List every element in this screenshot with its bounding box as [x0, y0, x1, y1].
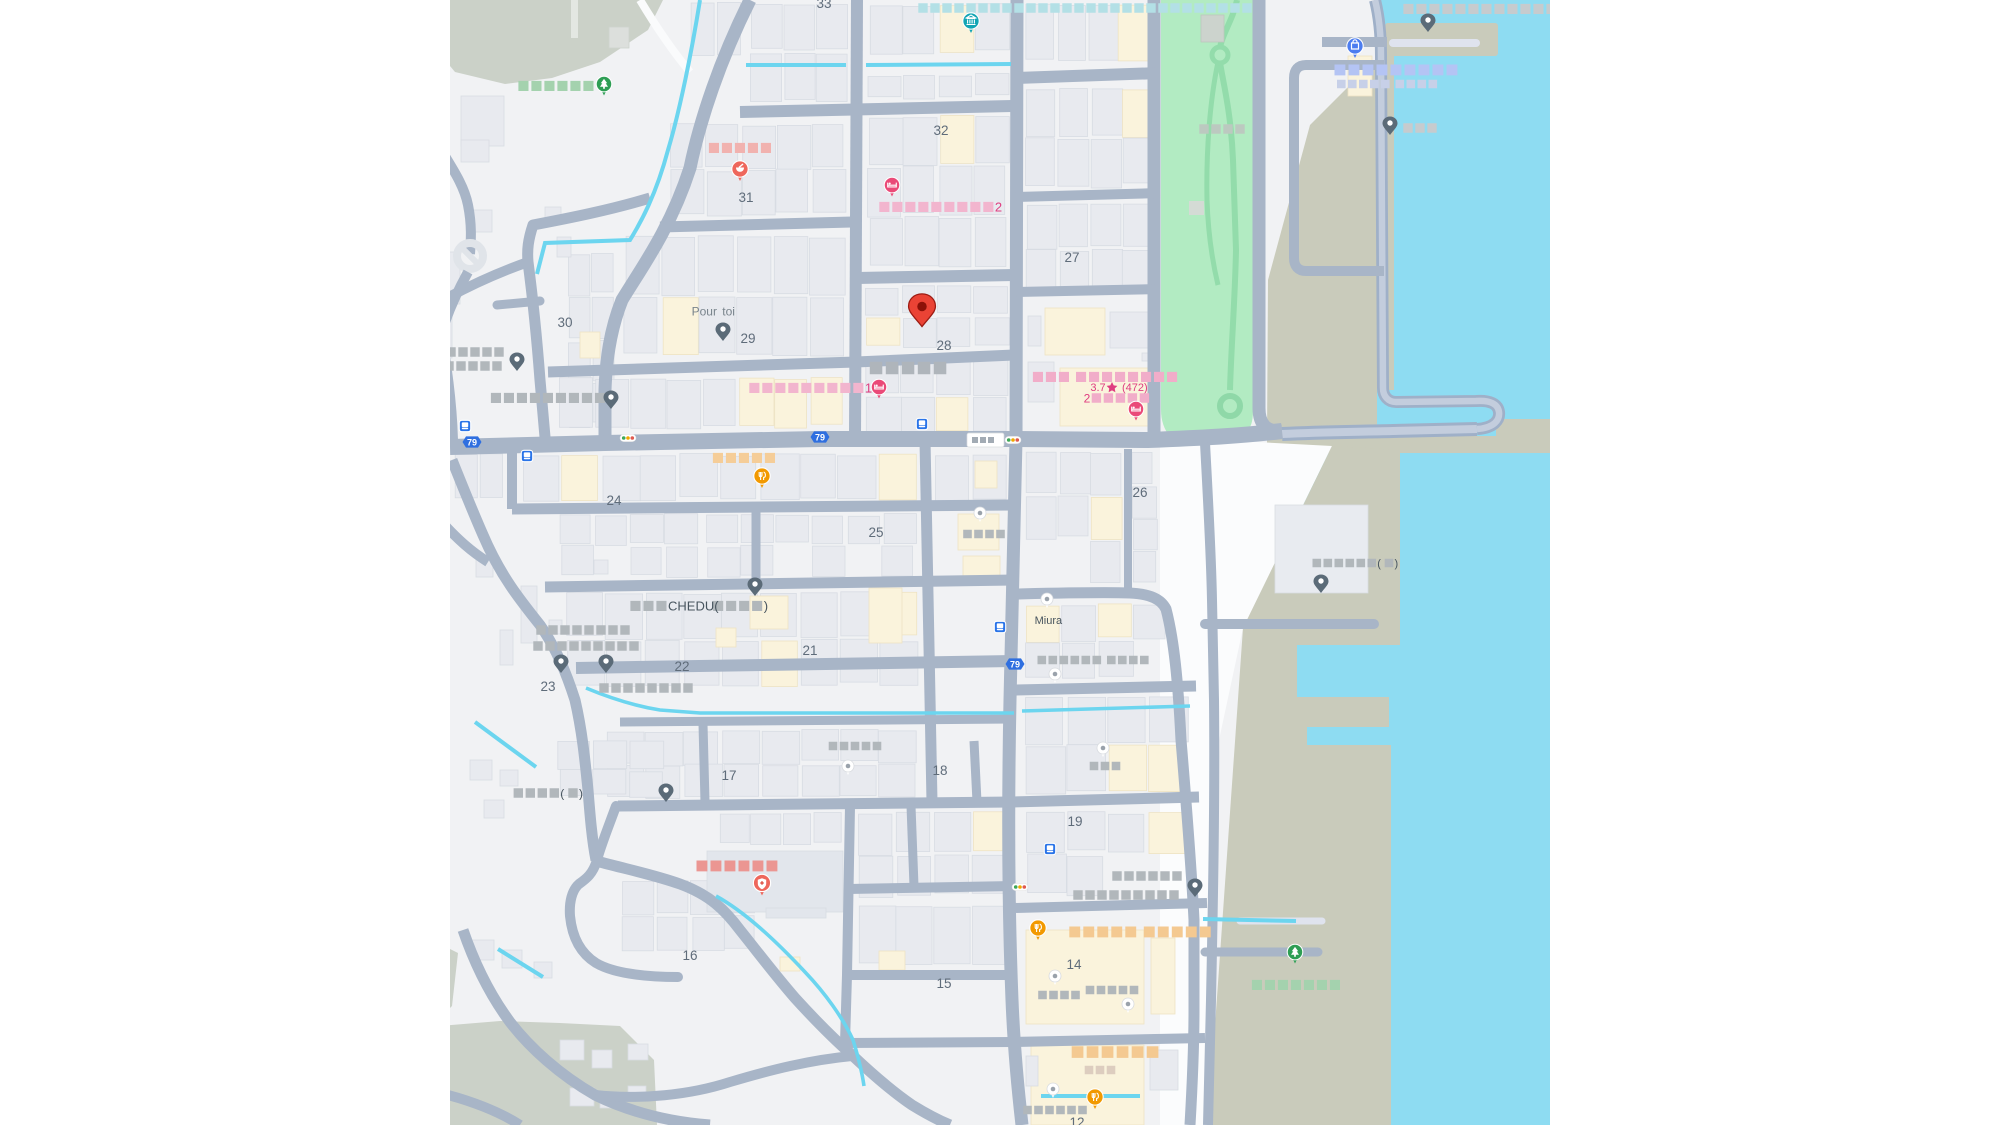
svg-text:24: 24: [606, 493, 622, 508]
svg-text:(: (: [1377, 558, 1381, 570]
svg-text:(472): (472): [1122, 382, 1148, 394]
svg-text:17: 17: [721, 768, 736, 783]
svg-text:23: 23: [540, 679, 555, 694]
svg-text:(: (: [560, 786, 564, 800]
svg-text:2: 2: [1084, 391, 1091, 405]
svg-text:Pour: Pour: [692, 304, 717, 318]
svg-text:32: 32: [933, 123, 948, 138]
svg-text:2: 2: [995, 200, 1002, 215]
svg-text:28: 28: [936, 338, 951, 353]
svg-text:29: 29: [740, 331, 755, 346]
svg-text:3.7: 3.7: [1090, 382, 1105, 394]
svg-text:31: 31: [738, 190, 753, 205]
svg-text:18: 18: [932, 763, 947, 778]
svg-text:21: 21: [802, 643, 817, 658]
svg-text:79: 79: [467, 437, 477, 447]
svg-text:22: 22: [674, 659, 689, 674]
svg-text:30: 30: [557, 315, 572, 330]
svg-text:79: 79: [815, 432, 825, 442]
svg-text:79: 79: [1010, 659, 1020, 669]
svg-text:Miura: Miura: [1035, 615, 1063, 627]
svg-text:25: 25: [868, 525, 883, 540]
svg-text:19: 19: [1067, 814, 1082, 829]
svg-text:15: 15: [936, 976, 951, 991]
svg-text:33: 33: [816, 0, 831, 11]
svg-text:26: 26: [1132, 485, 1147, 500]
svg-text:16: 16: [682, 948, 697, 963]
svg-text:CHEDU(: CHEDU(: [668, 599, 719, 614]
svg-text:toi: toi: [722, 304, 735, 318]
svg-text:12: 12: [1069, 1115, 1084, 1125]
svg-text:27: 27: [1064, 250, 1079, 265]
svg-text:14: 14: [1066, 957, 1082, 972]
svg-text:): ): [764, 599, 768, 614]
svg-text:): ): [1395, 558, 1399, 570]
svg-text:): ): [579, 786, 583, 800]
